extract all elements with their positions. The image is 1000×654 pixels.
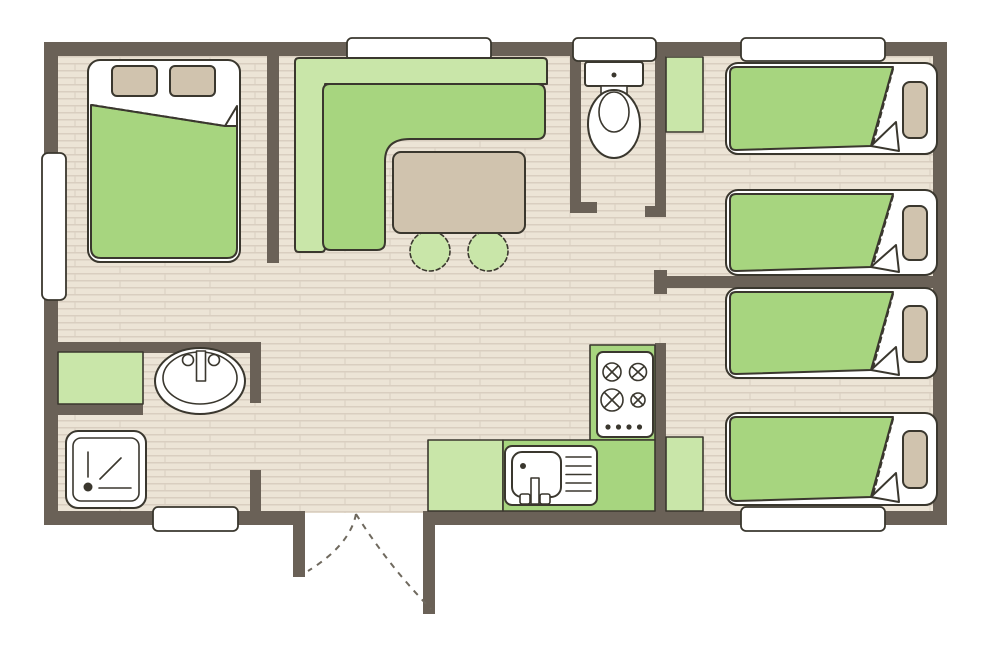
window-master <box>42 153 66 300</box>
knob-dot <box>637 424 642 429</box>
wall-wc-right-foot <box>645 206 666 217</box>
floor-plan <box>0 0 1000 654</box>
single-bed-1 <box>726 63 937 154</box>
pillow <box>903 206 927 260</box>
cabinet-hall <box>666 57 703 132</box>
knob-dot <box>626 424 631 429</box>
bed-blanket <box>730 292 893 374</box>
door-jamb-left <box>293 511 305 577</box>
wall-bathroom-corner <box>250 470 261 511</box>
window-wc <box>573 38 656 61</box>
window-bedroom-top <box>741 38 885 61</box>
double-bed <box>88 60 240 262</box>
shower-tray <box>66 431 146 508</box>
stool <box>410 231 450 271</box>
bed-blanket <box>730 67 893 150</box>
basin-faucet <box>197 351 206 381</box>
flush-button <box>612 73 617 78</box>
wall-master-bedroom <box>267 56 279 263</box>
wall-wc-left <box>570 56 581 213</box>
basin-knob-right <box>209 355 220 366</box>
toilet <box>585 62 643 158</box>
wall-bedroom-divider <box>660 276 933 288</box>
cabinet-bathroom <box>58 352 143 404</box>
basin-knob-left <box>183 355 194 366</box>
wall-wc-right <box>655 56 666 217</box>
wall-wc-left-foot <box>570 202 597 213</box>
shower-drain <box>84 483 93 492</box>
double-bed-blanket <box>91 105 237 258</box>
counter-fridge <box>428 440 503 511</box>
window-bedroom-bottom <box>741 507 885 531</box>
door-jamb-right <box>423 511 435 614</box>
single-bed-3 <box>726 288 937 378</box>
sink-knob <box>540 494 550 504</box>
knob-dot <box>616 424 621 429</box>
single-bed-4 <box>726 413 937 505</box>
pillow <box>112 66 157 96</box>
dining-table <box>393 152 525 233</box>
entrance-door <box>308 514 431 609</box>
kitchen-sink <box>505 446 597 505</box>
window-bathroom <box>153 507 238 531</box>
stool <box>468 231 508 271</box>
cabinet-kitchen <box>666 437 703 511</box>
pillow <box>903 306 927 362</box>
door-leaf-right <box>356 514 431 609</box>
knob-dot <box>605 424 610 429</box>
sink-knob <box>520 494 530 504</box>
shower <box>66 431 146 508</box>
bed-blanket <box>730 194 893 271</box>
sink-drain <box>520 463 526 469</box>
door-leaf-left <box>308 514 356 571</box>
floor-plan-page <box>0 0 1000 654</box>
pillow <box>903 431 927 488</box>
single-bed-2 <box>726 190 937 275</box>
pillow <box>170 66 215 96</box>
toilet-bowl <box>588 90 640 158</box>
bed-blanket <box>730 417 893 501</box>
pillow <box>903 82 927 138</box>
washbasin <box>155 348 245 414</box>
sink-faucet <box>531 478 539 504</box>
wall-bathroom-right <box>250 353 261 403</box>
wall-kitchen <box>655 343 666 511</box>
wall-bathroom-mid <box>58 404 143 415</box>
